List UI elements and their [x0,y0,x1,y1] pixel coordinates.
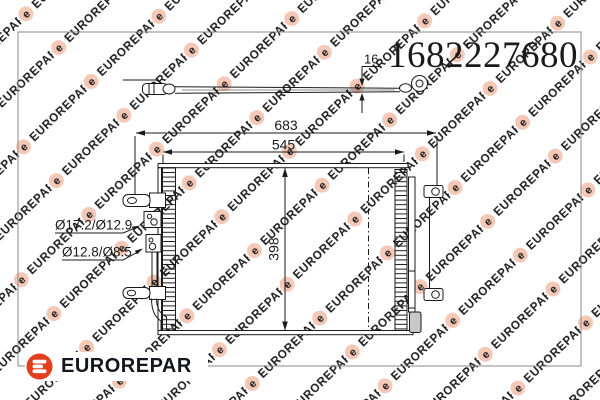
dim-text-16: 16 [364,52,378,67]
condenser-drawing [123,136,443,335]
label-lower-fitting: Ø12.8/Ø8.5 [62,245,132,260]
dimension-core-width: 545 [163,137,404,164]
receiver-drier [409,177,416,312]
eurorepar-logo-text: EUROREPAR [61,355,192,378]
right-fin-column [395,170,407,331]
part-number: 1682227680 [388,35,578,76]
dimension-pipe-thickness: 16 [359,52,381,114]
fitting-labels: Ø17.2/Ø12.9 Ø12.8/Ø8.5 [55,218,143,261]
dim-text-545: 545 [272,137,296,153]
catalog-image: e EUROREPAR 1682227680 [0,0,600,400]
pipe-drawing [123,76,428,95]
condenser-top-bar [158,164,408,168]
label-upper-fitting: Ø17.2/Ø12.9 [55,218,132,233]
condenser-bottom-bar [158,331,413,335]
dim-text-398: 398 [266,237,282,261]
eurorepar-logo: EUROREPAR [25,352,208,381]
drawing-border [18,32,581,366]
left-fin-column [163,168,176,331]
technical-drawing: 1682227680 16 [0,0,600,400]
drier-end-cap [410,312,422,333]
dim-text-683: 683 [274,117,298,133]
dimension-overall-width: 683 [136,117,436,136]
dimension-core-height: 398 [266,168,288,331]
eurorepar-logo-icon [26,353,53,380]
